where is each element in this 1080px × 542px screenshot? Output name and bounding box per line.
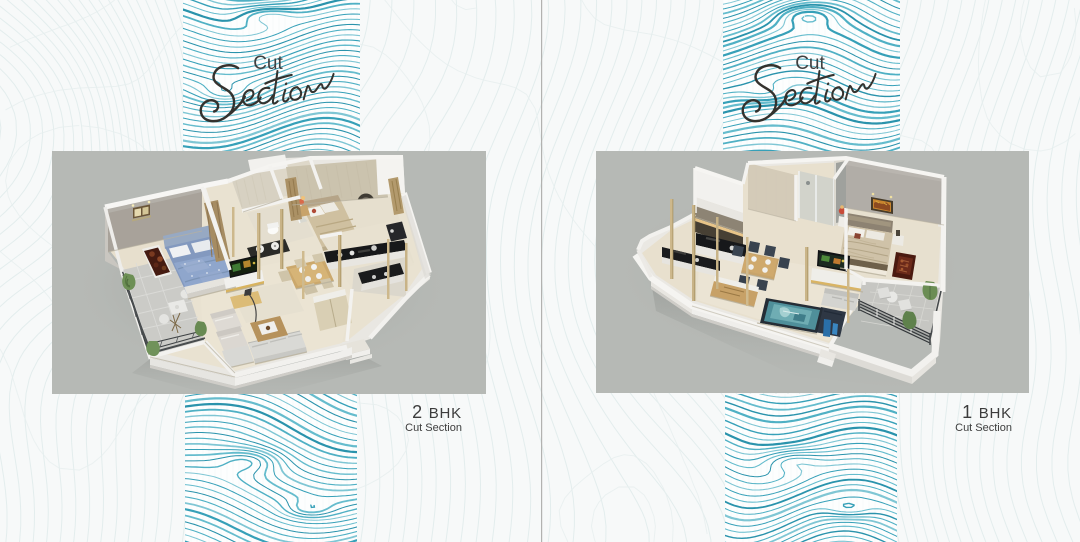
- svg-text:Cut: Cut: [253, 53, 283, 74]
- svg-text:Cut Section: Cut Section: [955, 422, 1012, 434]
- svg-text:Cut: Cut: [795, 53, 825, 74]
- svg-text:Cut Section: Cut Section: [405, 422, 462, 434]
- svg-text:2 BHK: 2 BHK: [412, 402, 462, 422]
- svg-text:1 BHK: 1 BHK: [962, 402, 1012, 422]
